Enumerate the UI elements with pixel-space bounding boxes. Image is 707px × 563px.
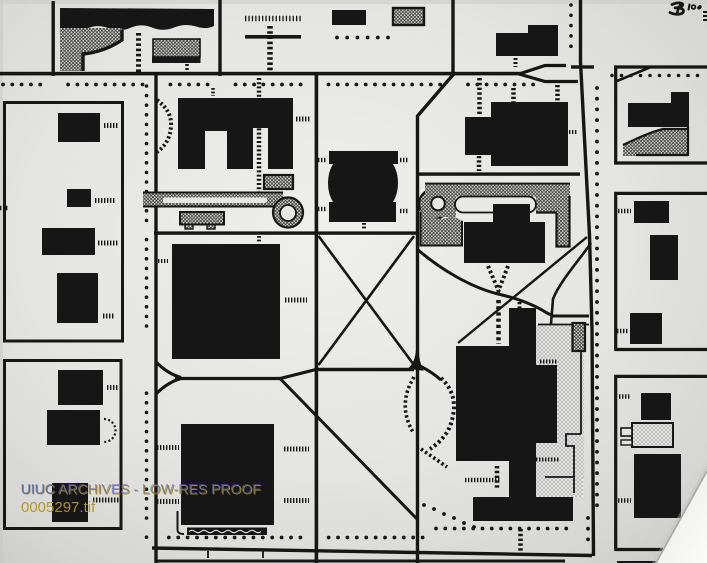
svg-text:0005297.tif: 0005297.tif — [21, 499, 96, 516]
svg-text:UIUC ARCHIVES - LOW-RES PROOF: UIUC ARCHIVES - LOW-RES PROOF — [21, 481, 261, 497]
svg-text:UIUC: UIUC — [21, 481, 55, 497]
